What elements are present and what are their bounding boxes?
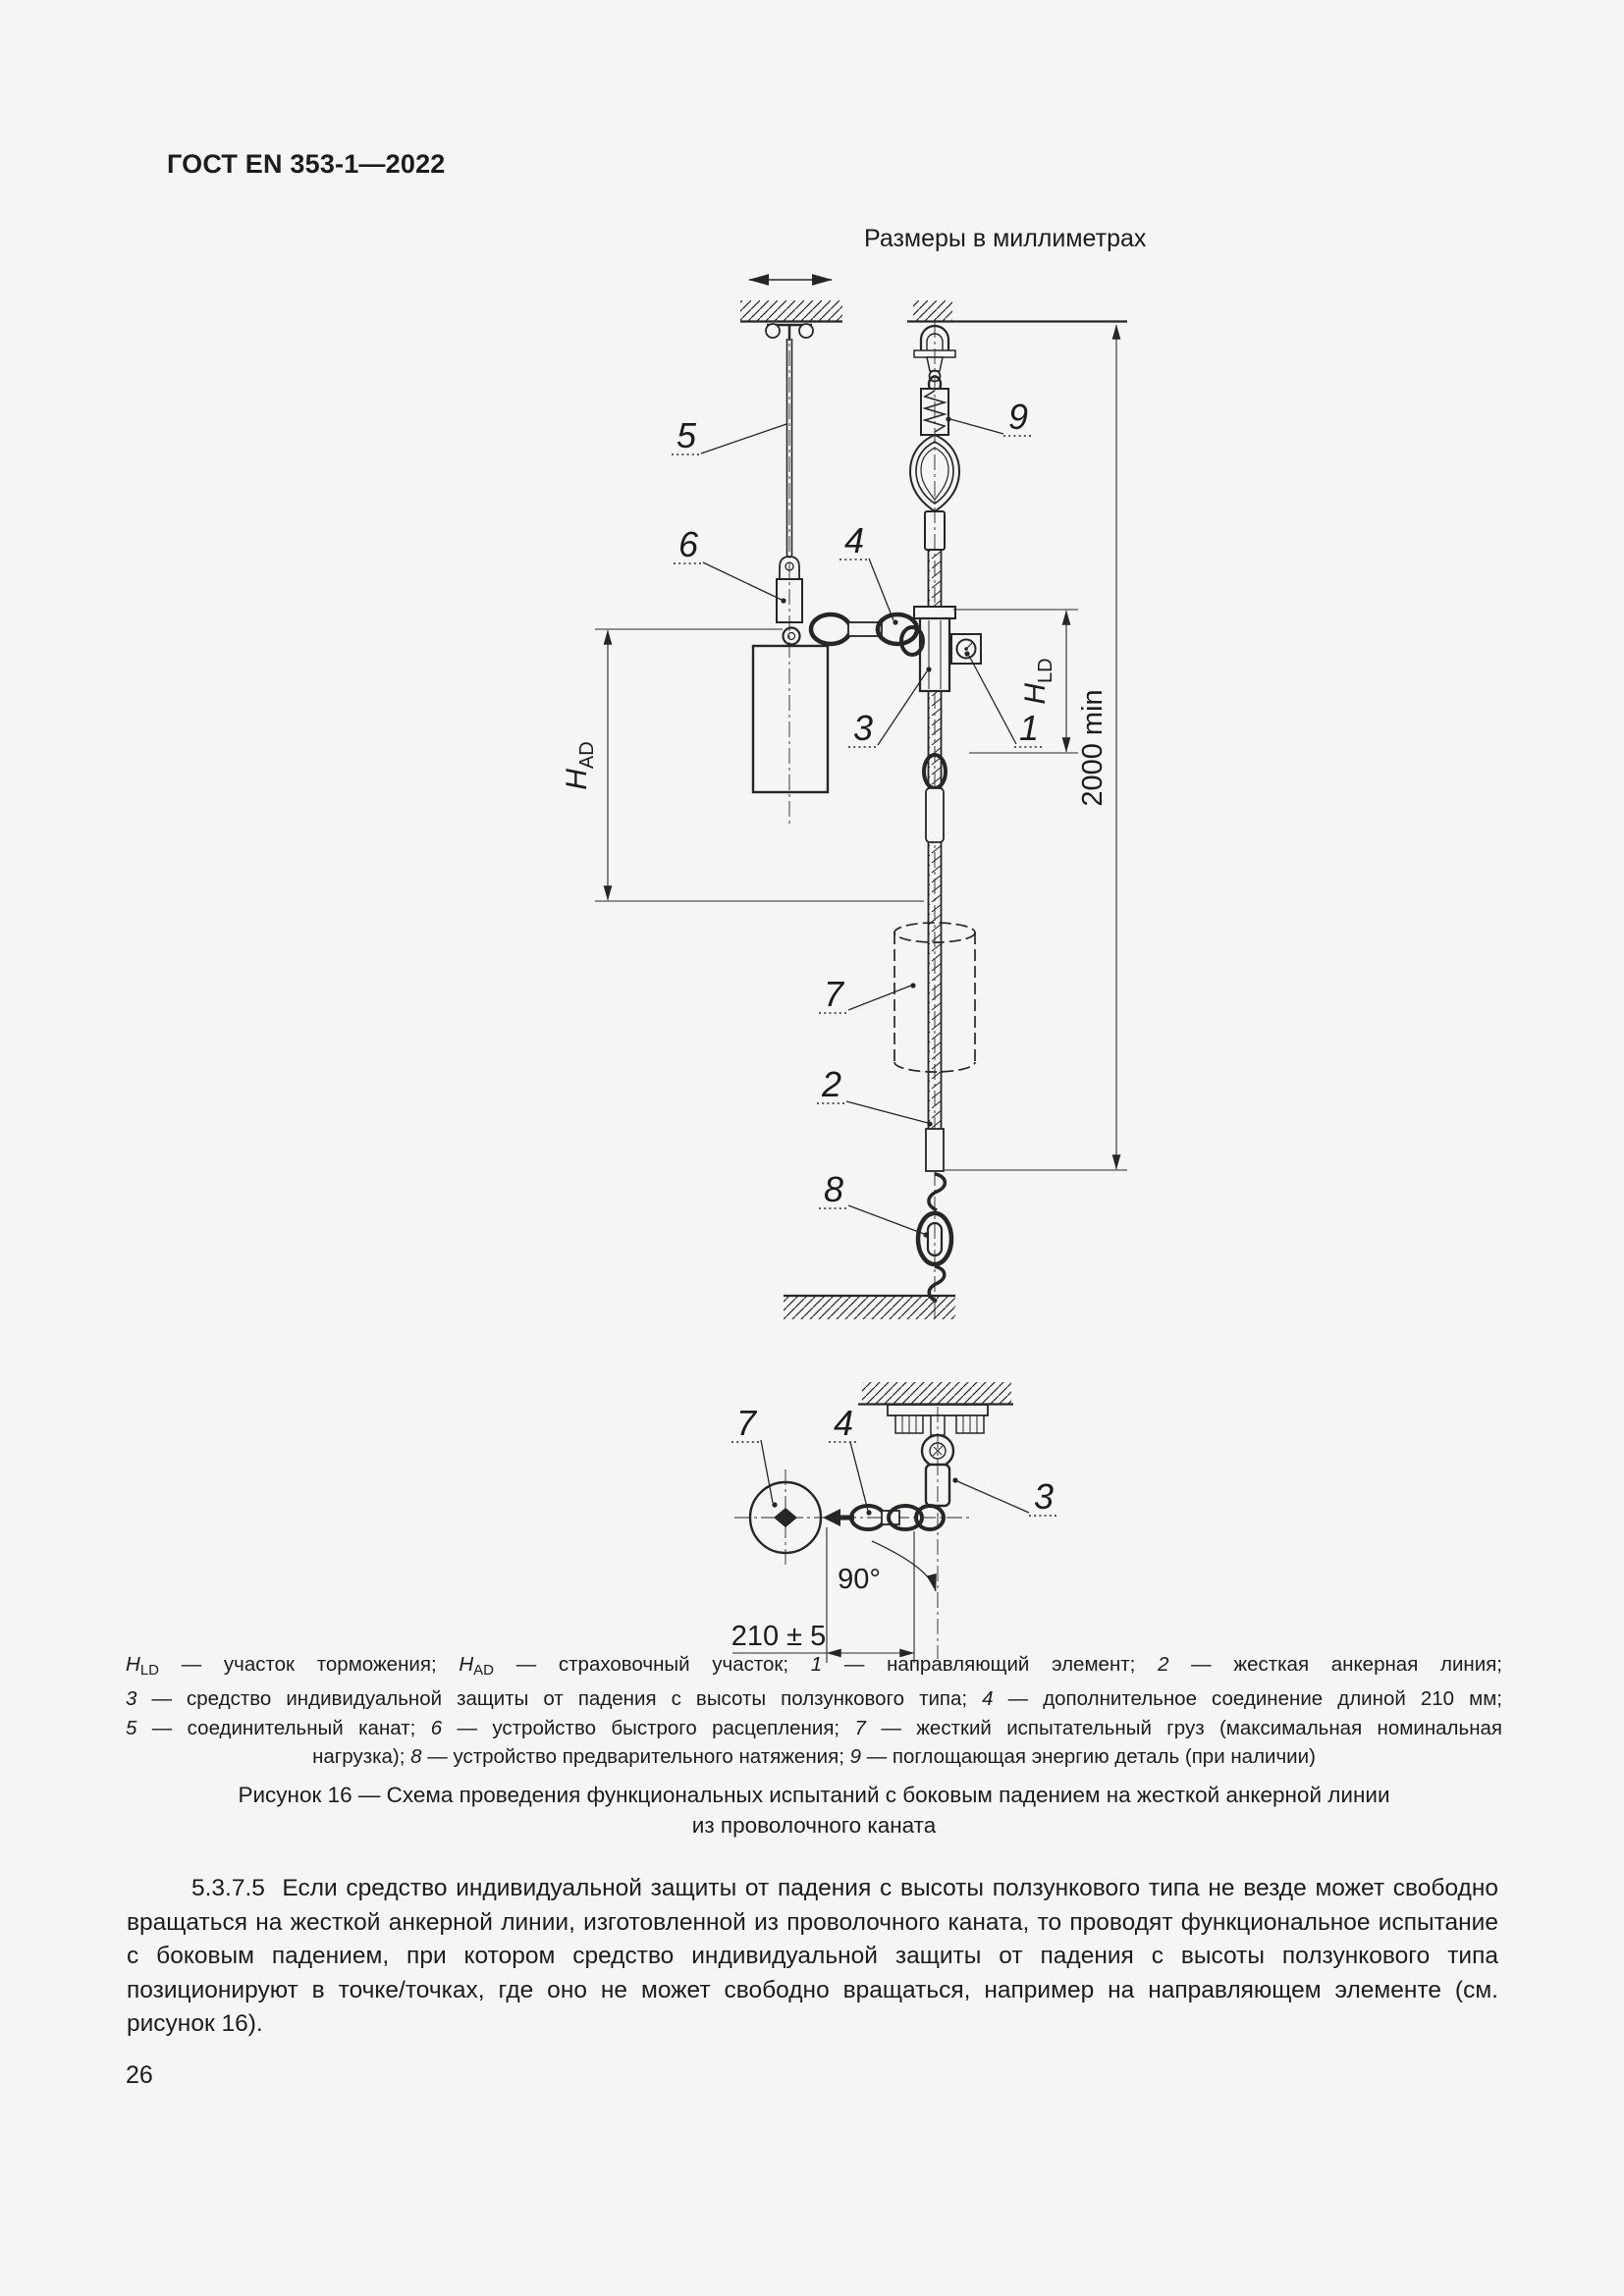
svg-text:1: 1 xyxy=(1019,708,1039,748)
rope-end-fitting xyxy=(926,1129,944,1171)
legend-line-1: HLD — участок торможения; HAD — страхово… xyxy=(126,1650,1502,1684)
figure-caption: Рисунок 16 — Схема проведения функционал… xyxy=(126,1780,1502,1841)
legend-number: 8 xyxy=(410,1745,421,1768)
legend-text: — жесткий испытательный груз (максимальн… xyxy=(866,1717,1502,1739)
svg-text:4: 4 xyxy=(844,520,864,561)
legend-text: — дополнительное соединение длиной 210 м… xyxy=(994,1687,1502,1710)
legend-symbol: H xyxy=(126,1653,140,1676)
angle-90-annotation: 90° xyxy=(838,1541,936,1595)
h-ad-label: HAD xyxy=(561,741,598,789)
legend-number: 9 xyxy=(850,1745,861,1768)
svg-text:8: 8 xyxy=(824,1169,843,1209)
legend-text: — соединительный канат; xyxy=(136,1717,430,1739)
legend-text: — страховочный участок; xyxy=(494,1653,811,1676)
left-ceiling-hatch xyxy=(740,300,842,322)
legend-text: — жесткая анкерная линия; xyxy=(1168,1653,1502,1676)
legend-line-3: 5 — соединительный канат; 6 — устройство… xyxy=(126,1714,1502,1742)
legend-text: — направляющий элемент; xyxy=(822,1653,1158,1676)
svg-text:2: 2 xyxy=(821,1064,841,1104)
callout-8: 8 xyxy=(819,1169,929,1238)
h-ld-label: HLD xyxy=(1019,658,1056,704)
legend-text: — устройство предварительного натяжения; xyxy=(422,1745,850,1768)
upper-test-mass xyxy=(753,646,828,792)
legend-number: 3 xyxy=(126,1687,136,1710)
guide-element xyxy=(951,634,981,664)
legend-line-2: 3 — средство индивидуальной защиты от па… xyxy=(126,1684,1502,1713)
legend-subscript: AD xyxy=(473,1662,494,1679)
legend-number: 4 xyxy=(982,1687,993,1710)
rope-thimble-loop xyxy=(910,435,959,511)
svg-text:7: 7 xyxy=(736,1403,758,1443)
page-number: 26 xyxy=(126,2061,153,2090)
legend-text: — поглощающая энергию деталь (при наличи… xyxy=(861,1745,1316,1768)
callout-3-plan: 3 xyxy=(952,1476,1058,1517)
dimension-h-ld xyxy=(953,610,1078,753)
svg-text:4: 4 xyxy=(834,1403,853,1443)
right-ceiling-hatch xyxy=(907,300,1127,322)
legend-text: — участок торможения; xyxy=(159,1653,459,1676)
legend-number: 1 xyxy=(811,1653,822,1676)
caption-line-1: Рисунок 16 — Схема проведения функционал… xyxy=(126,1780,1502,1810)
callout-5: 5 xyxy=(672,415,786,455)
legend-symbol: H xyxy=(459,1653,473,1676)
figure-legend: HLD — участок торможения; HAD — страхово… xyxy=(126,1650,1502,1772)
callout-4-plan: 4 xyxy=(829,1403,872,1516)
document-page: ГОСТ EN 353-1—2022 Размеры в миллиметрах xyxy=(0,0,1624,2296)
legend-line-4: нагрузка); 8 — устройство предварительно… xyxy=(126,1742,1502,1771)
plan-view-diagram: 7 4 3 90° xyxy=(731,1382,1058,1663)
legend-text: — средство индивидуальной защиты от паде… xyxy=(136,1687,982,1710)
legend-number: 6 xyxy=(431,1717,442,1739)
legend-text: нагрузка); xyxy=(312,1745,410,1768)
legend-text: — устройство быстрого расцепления; xyxy=(442,1717,854,1739)
svg-text:6: 6 xyxy=(678,524,699,564)
plan-ceiling-hatch xyxy=(858,1382,1013,1405)
legend-number: 2 xyxy=(1158,1653,1168,1676)
legend-subscript: LD xyxy=(140,1662,159,1679)
callout-4: 4 xyxy=(839,520,898,625)
svg-text:5: 5 xyxy=(677,415,697,455)
callout-7-lower: 7 xyxy=(819,974,916,1014)
svg-text:3: 3 xyxy=(853,708,873,748)
svg-text:3: 3 xyxy=(1034,1476,1054,1517)
callout-7-plan: 7 xyxy=(731,1403,778,1508)
legend-number: 7 xyxy=(855,1717,866,1739)
main-test-diagram: HAD HLD xyxy=(561,280,1127,1321)
dimension-210-text: 210 ± 5 xyxy=(731,1621,827,1652)
paragraph-5-3-7-5: 5.3.7.5 Если средство индивидуальной защ… xyxy=(127,1872,1498,2042)
svg-text:7: 7 xyxy=(824,974,845,1014)
legend-number: 5 xyxy=(126,1717,136,1739)
svg-text:90°: 90° xyxy=(838,1564,881,1595)
svg-text:9: 9 xyxy=(1008,397,1028,437)
ground-hatch xyxy=(784,1296,955,1319)
callout-9: 9 xyxy=(946,397,1033,437)
dimension-2000-text: 2000 min xyxy=(1077,689,1109,806)
callout-2: 2 xyxy=(817,1064,933,1127)
caption-line-2: из проволочного каната xyxy=(126,1810,1502,1841)
attachment-ring xyxy=(784,628,800,645)
callout-6: 6 xyxy=(674,524,786,604)
